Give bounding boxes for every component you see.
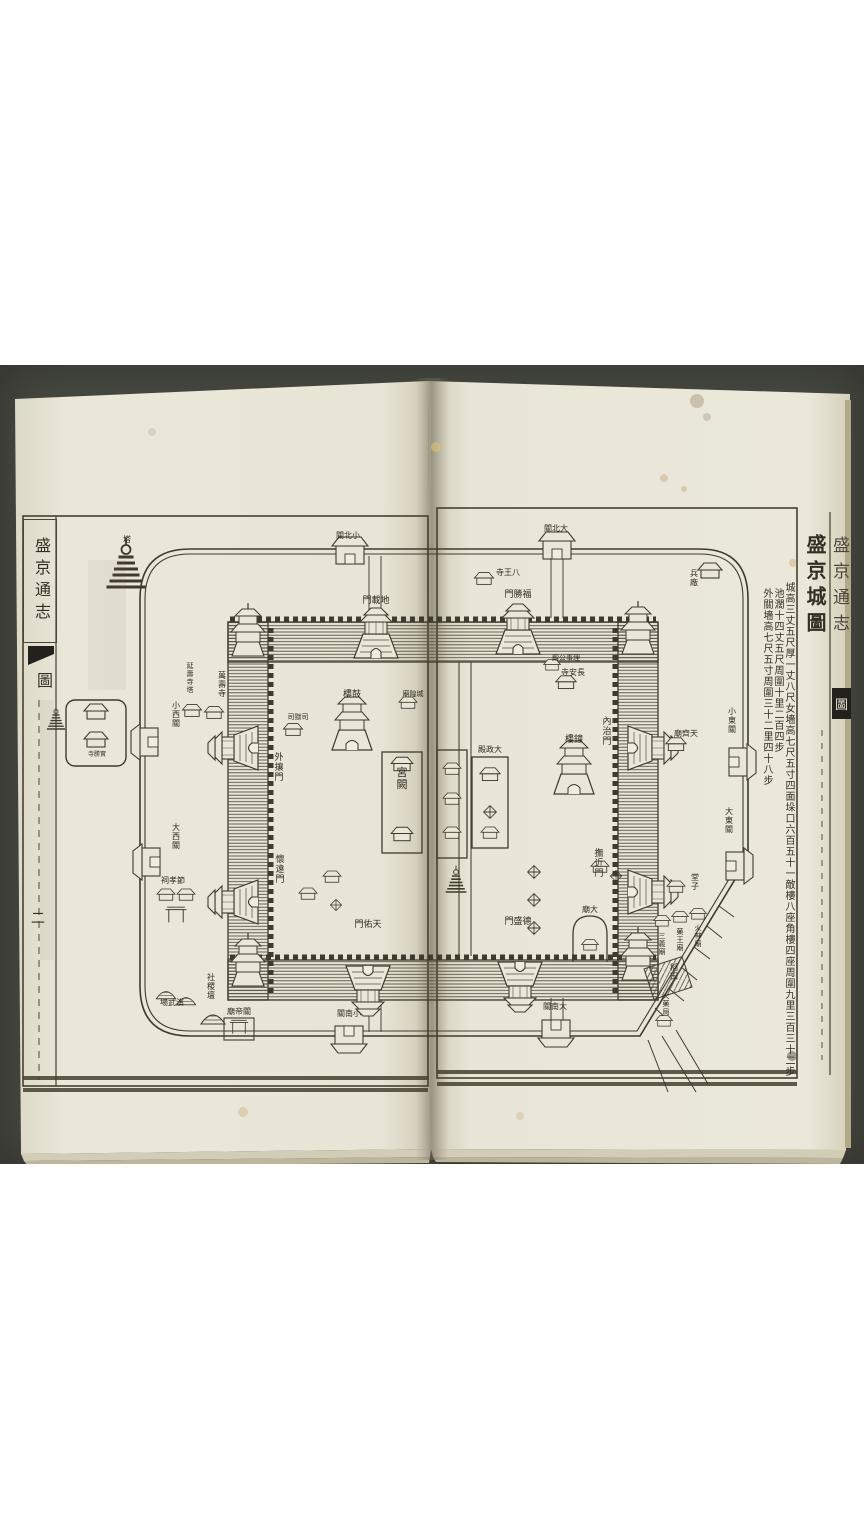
map-title: 盛京城圖 [800,534,829,638]
shrine-tangzi: 堂子 [691,872,699,891]
gate-dadong-guan: 大東關 [725,806,733,834]
left-page [15,381,431,1164]
yard-bingchang: 兵廠 [690,568,698,587]
palace-gongque: 宮闕 [397,765,408,791]
tower-gulou: 樓鼓 [343,688,361,699]
temple-bawangsi: 寺王八 [496,568,520,577]
left-spine-section-tab: 圖 [30,672,54,688]
temple-tianqimiao: 廟齊天 [674,728,698,738]
gate-danan-guan: 關南大 [543,1001,567,1011]
shrine-jiexiaoci: 祠孝節 [161,875,185,885]
office-huoyaoju: 火藥局 [663,992,670,1016]
altar-shejitan: 社稷壇 [207,972,215,1000]
gate-xiaonan-guan: 關南小 [337,1008,361,1018]
office-lishi-gongxie: 廨公事理 [552,653,580,662]
gate-daxi-guan: 大西關 [172,822,180,850]
book-title: 盛京通志 [28,537,52,625]
gate-xiaodong-guan: 小東關 [728,707,736,734]
center-fold-shadow [415,378,449,1160]
gate-fusheng-men: 門勝福 [504,588,531,599]
right-partial-section-tab: 圖 [832,688,851,719]
temple-shishengsi: 寺勝實 [88,750,106,758]
temple-yaowangmiao: 藥王廟 [677,927,684,952]
tower-zhonglou: 樓鐘 [565,733,583,744]
book-spread-scan: 門載地門勝福內治門撫近門門佑天門盛德外攘門懷遠門關北小關北大小西關大西關小東關大… [0,365,864,1164]
wall-stats-line-2: 池濶十四丈五尺周圍十里二百四步 [772,588,782,753]
field-daotian: 稻田 [670,962,678,981]
wall-stats-line-3: 外關墻高七尺五寸周圍三十二里四十八步 [761,588,771,786]
left-spine-title-box: 盛京通志 [23,519,57,643]
temple-chenghuangmiao: 廟隍城 [403,689,424,698]
pagoda-yanshousita: 延壽寺塔 [187,661,194,694]
gate-xiaobei-guan: 關北小 [336,531,360,540]
page-number: 二 [31,908,45,928]
gate-fujin-men: 撫近門 [594,847,603,878]
temple-guandimiao: 廟帝關 [227,1006,251,1016]
office-siyusi: 司獄司 [288,712,309,721]
gate-huaiyuan-men: 懷遠門 [275,853,284,884]
gate-dizai-men: 門載地 [362,594,389,605]
temple-damiao: 廟大 [582,904,598,914]
gate-tianyou-men: 門佑天 [354,918,381,929]
gate-dabei-guan: 關北大 [544,523,568,533]
right-partial-spine-title: 盛京通志 [833,536,852,686]
gate-desheng-men: 門盛德 [504,915,531,926]
gate-neizhi-men: 內治門 [602,716,611,746]
gate-wairang-men: 外攘門 [274,751,283,782]
pagoda-ta: 塔 [123,534,131,544]
temple-changansi: 寺安長 [561,667,585,677]
ground-yanwuchang: 場武演 [160,997,184,1007]
temple-sanyimiao: 三義廟 [659,932,666,956]
temple-wanshousi: 萬壽寺 [218,670,226,698]
wall-stats-line-1: 城高三丈五尺厚一丈八尺女墻高七尺五寸四面垛口六百五十一敵樓八座角樓四座周圍九里三… [783,582,793,1077]
temple-huoshenmiao: 火神廟 [695,924,702,948]
palace-dazhengdian: 殿政大 [478,744,502,754]
gate-xiaoxi-guan: 小西關 [172,701,180,728]
